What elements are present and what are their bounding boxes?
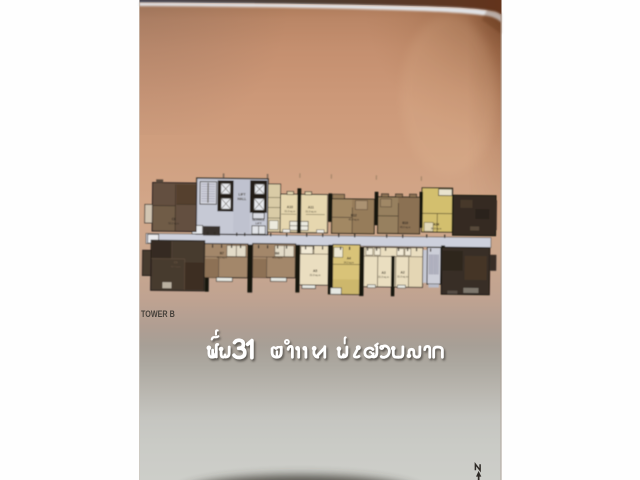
svg-text:A3: A3 [381,271,385,275]
svg-text:45.2 sq.m: 45.2 sq.m [272,257,282,259]
svg-text:45.0 sq.m: 45.0 sq.m [400,226,411,229]
svg-text:50.2 sq.m: 50.2 sq.m [171,266,181,268]
svg-text:31.0 sq.m: 31.0 sq.m [397,276,408,279]
svg-text:HALL: HALL [237,197,246,201]
svg-text:34.2 sq.m: 34.2 sq.m [344,262,354,264]
svg-text:31.0 sq.m: 31.0 sq.m [378,276,389,279]
svg-text:TOWER B: TOWER B [141,309,175,319]
svg-text:45.0 sq.m: 45.0 sq.m [348,218,359,221]
svg-text:B6: B6 [275,252,279,256]
svg-text:LIFT: LIFT [255,221,261,225]
svg-text:45.2 sq.m: 45.2 sq.m [217,257,227,259]
svg-text:C5: C5 [174,260,178,264]
svg-text:B7: B7 [220,251,224,255]
svg-text:31.0 sq.m: 31.0 sq.m [305,210,316,213]
svg-text:A10: A10 [287,205,293,209]
svg-text:31.0 sq.m: 31.0 sq.m [310,274,321,277]
svg-text:A14: A14 [433,222,439,226]
svg-text:A4: A4 [347,256,351,260]
svg-text:31.0 sq.m: 31.0 sq.m [284,210,295,213]
svg-text:A5: A5 [313,269,317,273]
svg-text:B12: B12 [351,213,357,217]
svg-text:C8: C8 [172,217,176,221]
svg-text:52.2 sq.m: 52.2 sq.m [168,222,179,225]
svg-text:A2: A2 [400,271,404,275]
svg-text:B10: B10 [402,221,408,225]
svg-text:A11: A11 [308,205,314,209]
svg-text:LIFT: LIFT [238,193,246,197]
svg-text:30.0 sq.m: 30.0 sq.m [431,227,442,230]
